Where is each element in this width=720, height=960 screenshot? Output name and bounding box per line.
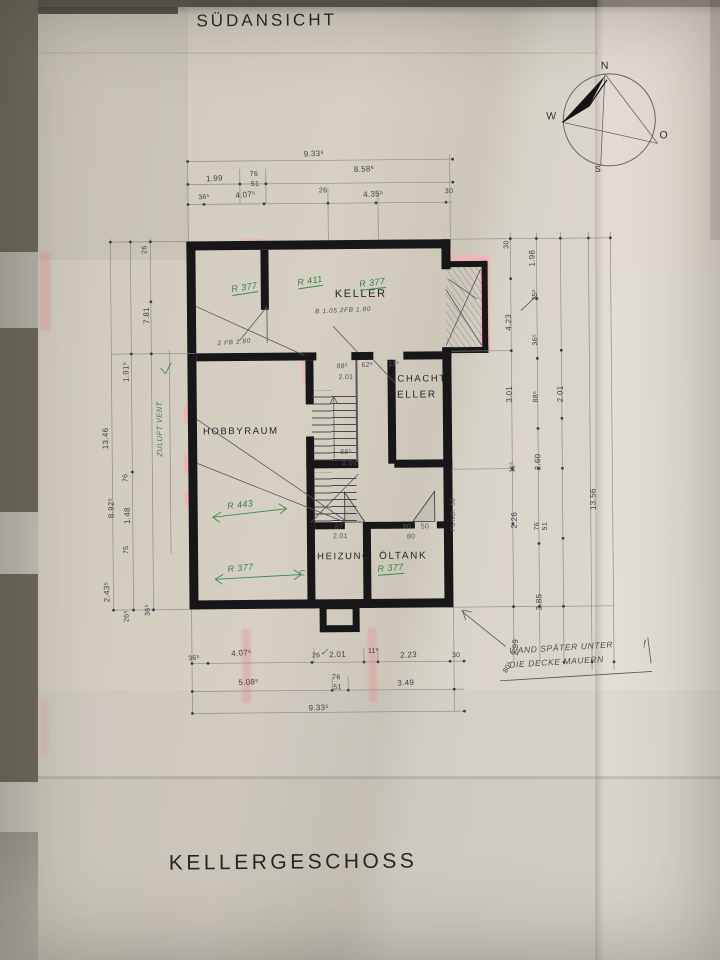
drawing-lines-layer <box>0 0 720 960</box>
photo-of-basement-floor-plan: SÜDANSICHT KELLERGESCHOSS N W O S <box>0 0 720 960</box>
dimension-label-right: 2.26 <box>510 512 519 529</box>
room-label-schacht: SCHACHT <box>390 373 447 384</box>
dimension-label-top: 76 <box>250 171 258 178</box>
dimension-label-left: 75 <box>123 546 130 554</box>
dimension-label-bottom: 11⁵ <box>368 648 379 655</box>
room-label-heizung: HEIZUNG <box>317 551 371 562</box>
dimension-label-interior: 2.01 <box>333 533 348 540</box>
dimension-label-bottom: 2.23 <box>400 650 417 660</box>
dimension-label-interior: 88⁵ <box>336 363 348 370</box>
dimension-label-top: 9.33⁵ <box>304 149 325 159</box>
dimension-label-top: 51 <box>251 181 259 188</box>
dimension-label-left: 13.46 <box>101 428 110 450</box>
dimension-label-top: 36⁵ <box>198 193 210 201</box>
dimension-label-bottom: 36⁵ <box>188 655 200 663</box>
dimension-label-bottom: 2.01 <box>329 650 346 660</box>
dimension-label-interior: 2.01 <box>339 374 354 381</box>
dimension-label-right: 1.98 <box>527 250 536 267</box>
dimension-label-bottom: 76 <box>332 674 340 681</box>
dimension-label-right: 25⁵ <box>532 289 539 301</box>
drawing-sheet: SÜDANSICHT KELLERGESCHOSS N W O S <box>0 0 720 960</box>
green-annotation: ✓ <box>320 647 329 658</box>
dimension-label-left: 26 <box>141 245 148 253</box>
dimension-label-top: 8.58⁵ <box>354 164 375 174</box>
dimension-label-left: 26⁵ <box>124 610 131 622</box>
dimension-label-interior: 62⁵ <box>361 362 373 369</box>
dimension-label-interior: 80 <box>403 524 411 531</box>
room-label-hobbyraum: HOBBYRAUM <box>203 426 279 438</box>
dimension-label-left: 36⁵ <box>145 604 152 616</box>
dimension-label-right: 11⁵ <box>509 462 516 473</box>
room-label-oeltank: ÖLTANK <box>379 550 427 561</box>
dimension-label-left: 8.92⁵ <box>107 498 116 518</box>
dimension-label-left: 1.48 <box>123 507 132 524</box>
green-annotation: ZULUFT VENT. <box>155 400 164 457</box>
dimension-label-right: 30 <box>503 240 510 248</box>
dimension-label-right: 51 <box>542 522 549 530</box>
dimension-label-left: 2.43⁵ <box>102 582 111 602</box>
dimension-label-right: 3.01 <box>505 386 514 403</box>
dimension-label-interior: 80 <box>407 534 415 541</box>
room-label-schacht-keller: KELLER <box>389 389 437 400</box>
dimension-label-top: 4.07⁵ <box>235 189 256 200</box>
dimension-label-top: 30 <box>445 188 453 195</box>
dimension-label-bottom: 30 <box>452 652 460 659</box>
dimension-label-top: 26 <box>319 187 327 194</box>
dimension-label-right: 36⁵ <box>532 334 539 346</box>
dimension-label-right: 13.56 <box>589 488 598 510</box>
dimension-label-interior: 88⁵ <box>340 449 352 456</box>
dimension-label-right: 2.01 <box>556 385 565 402</box>
dimension-label-interior: 87 <box>335 524 343 531</box>
dimension-label-interior: 50 <box>421 523 429 530</box>
dimension-label-right: 76 <box>534 522 541 530</box>
dimension-label-bottom: 4.07⁵ <box>231 648 252 658</box>
dimension-label-right: 3.85 <box>534 594 543 611</box>
green-annotation: R 377 <box>377 562 404 576</box>
foundation-note: FUND. 50 <box>450 497 457 531</box>
dimension-label-bottom: 51 <box>333 684 341 691</box>
dimension-label-right: 88⁵ <box>533 391 540 403</box>
wall-note-exclamation: ! <box>643 639 647 651</box>
dimension-label-bottom: 5.08⁵ <box>238 677 259 687</box>
dimension-label-bottom: 3.49 <box>397 678 414 688</box>
dimension-label-interior: 11⁵ <box>388 361 399 368</box>
dimension-label-interior: 2.01 <box>342 460 357 467</box>
dimension-label-left: 7.81 <box>142 307 151 324</box>
green-annotation: C <box>299 568 305 577</box>
dimension-label-top: 4.35⁵ <box>363 189 384 199</box>
dimension-label-right: 4.23 <box>504 314 513 331</box>
dimension-label-left: 76 <box>122 474 129 482</box>
dimension-label-bottom: 9.33⁵ <box>308 703 329 713</box>
dimension-label-right: 2.60 <box>533 454 542 471</box>
dimension-label-top: 1.99 <box>206 174 223 184</box>
dimension-label-left: 1.91⁵ <box>121 362 130 382</box>
